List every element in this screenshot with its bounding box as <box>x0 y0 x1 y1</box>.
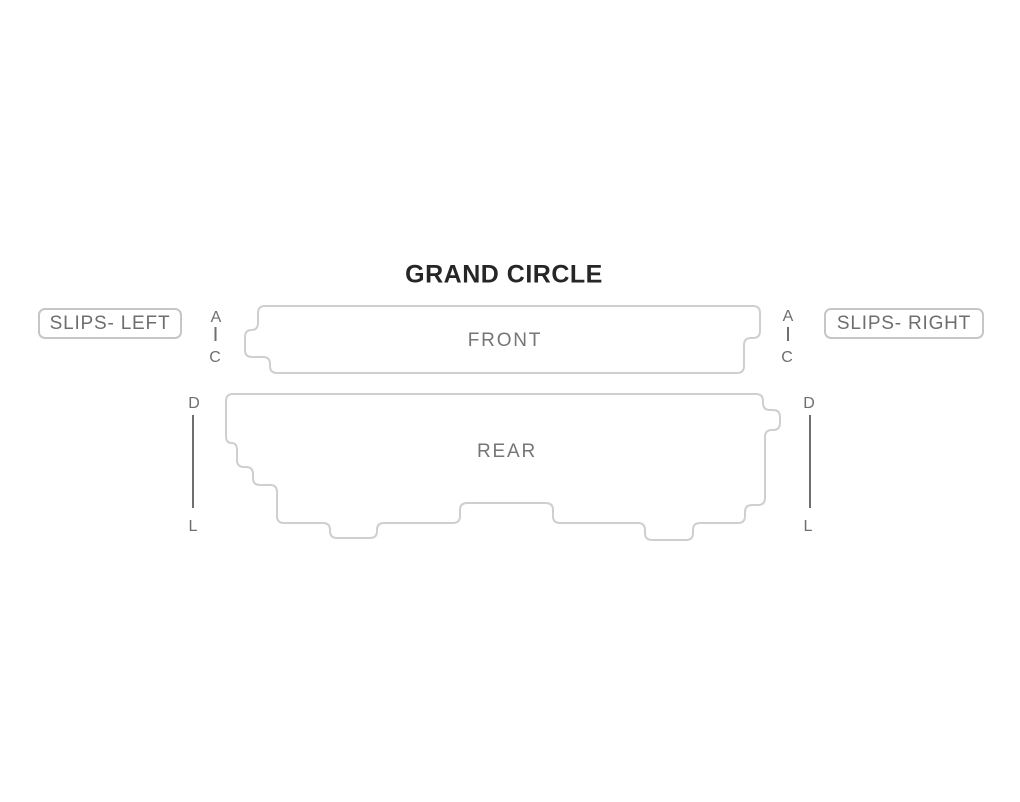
row-letter-rear-left-first: D <box>188 395 200 413</box>
rear-section-label: REAR <box>477 441 537 463</box>
row-letter-front-right-last: C <box>781 349 793 367</box>
front-section-label: FRONT <box>468 330 542 352</box>
rear-section-outline[interactable] <box>226 394 780 540</box>
row-letter-front-left-last: C <box>209 349 221 367</box>
row-letter-rear-left-last: L <box>189 518 198 536</box>
seatmap-svg <box>0 0 1020 802</box>
row-letter-front-left-first: A <box>211 309 222 327</box>
row-letter-rear-right-last: L <box>804 518 813 536</box>
row-letter-front-right-first: A <box>783 308 794 326</box>
row-letter-rear-right-first: D <box>803 395 815 413</box>
grand-circle-seat-map: GRAND CIRCLE SLIPS- LEFT SLIPS- RIGHT FR… <box>0 0 1020 802</box>
